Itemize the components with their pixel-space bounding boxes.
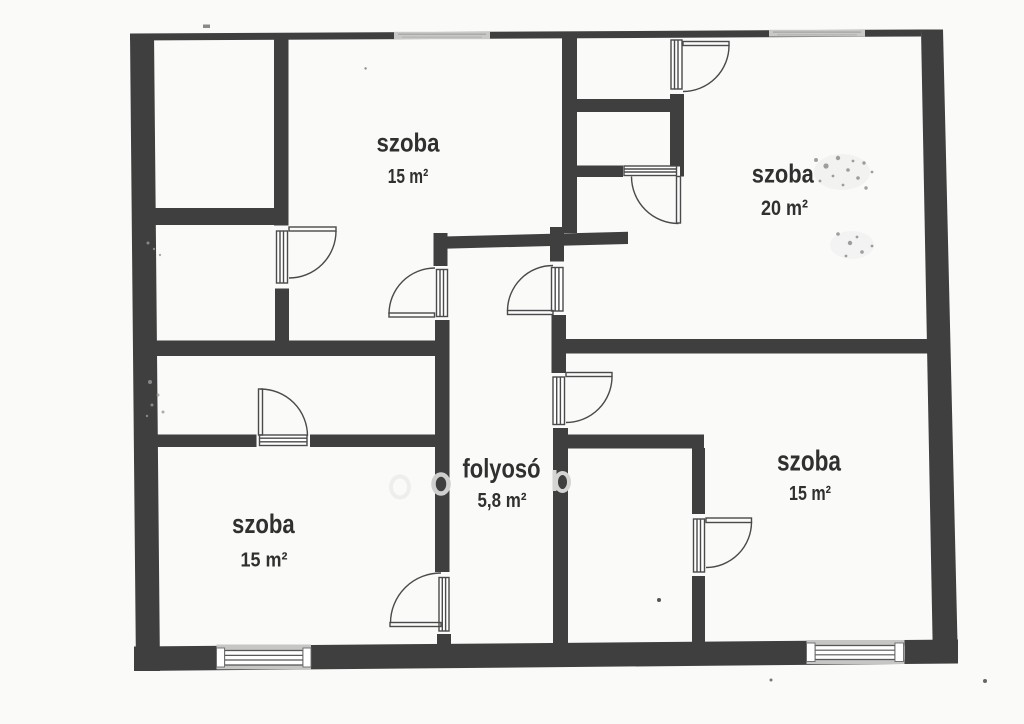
svg-text:szoba: szoba <box>377 128 440 158</box>
svg-text:5,8 m²: 5,8 m² <box>478 489 527 512</box>
svg-text:szoba: szoba <box>777 446 842 478</box>
svg-text:15 m²: 15 m² <box>388 165 429 188</box>
svg-text:folyosó: folyosó <box>463 454 541 484</box>
svg-text:szoba: szoba <box>752 159 814 189</box>
svg-text:15 m²: 15 m² <box>789 482 831 505</box>
svg-text:szoba: szoba <box>232 509 295 539</box>
svg-text:20 m²: 20 m² <box>761 196 808 220</box>
svg-text:15 m²: 15 m² <box>241 549 288 572</box>
